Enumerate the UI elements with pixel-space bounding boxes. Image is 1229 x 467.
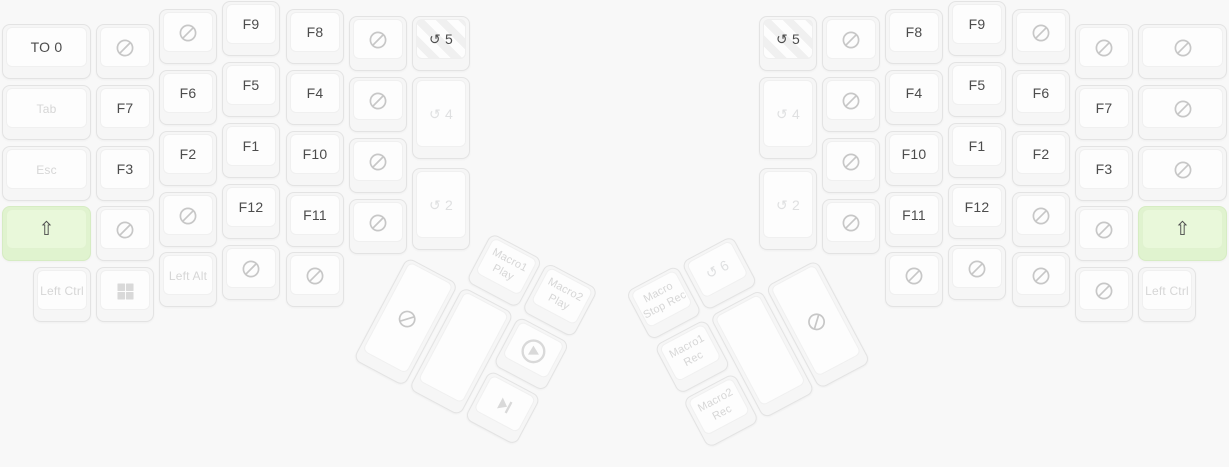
- key-f9[interactable]: F9: [948, 1, 1006, 56]
- key-label-line: F9: [243, 16, 260, 34]
- none-icon: [1076, 268, 1132, 314]
- key-label: F10: [287, 132, 343, 185]
- key-f10[interactable]: F10: [885, 131, 943, 186]
- key-label: ↺ 4: [413, 78, 469, 158]
- key-none[interactable]: [1138, 24, 1227, 79]
- none-icon: [823, 78, 879, 124]
- key-label: F9: [223, 2, 279, 55]
- key-label: F4: [886, 71, 942, 124]
- key-none[interactable]: [222, 245, 280, 300]
- key-f3[interactable]: F3: [1075, 146, 1133, 201]
- key-label-line: F12: [965, 199, 990, 217]
- key-f6[interactable]: F6: [1012, 70, 1070, 125]
- key-label-line: F1: [969, 138, 986, 156]
- none-icon: [823, 200, 879, 246]
- key-label-line: F1: [243, 138, 260, 156]
- key-label: ⇧: [3, 207, 90, 260]
- key-label-line: F4: [906, 85, 923, 103]
- key-none[interactable]: [1075, 267, 1133, 322]
- key-none[interactable]: [159, 192, 217, 247]
- none-icon: [350, 17, 406, 63]
- key-label-line: F8: [906, 24, 923, 42]
- key-label-line: F10: [902, 146, 927, 164]
- key-label: F2: [160, 132, 216, 185]
- key-f2[interactable]: F2: [159, 131, 217, 186]
- key-f3[interactable]: F3: [96, 146, 154, 201]
- key-f7[interactable]: F7: [96, 85, 154, 140]
- key-label-line: Left Ctrl: [40, 284, 84, 299]
- key-none[interactable]: [349, 77, 407, 132]
- key-none[interactable]: [885, 252, 943, 307]
- none-icon: [949, 246, 1005, 292]
- none-icon: [223, 246, 279, 292]
- key-f5[interactable]: F5: [948, 62, 1006, 117]
- none-icon: [823, 139, 879, 185]
- key-f9[interactable]: F9: [222, 1, 280, 56]
- key-label-line: F8: [307, 24, 324, 42]
- key-f2[interactable]: F2: [1012, 131, 1070, 186]
- none-icon: [823, 17, 879, 63]
- key-esc[interactable]: Esc: [2, 146, 91, 201]
- key-left-alt[interactable]: Left Alt: [159, 252, 217, 307]
- none-icon: [1076, 25, 1132, 71]
- key-f1[interactable]: F1: [222, 123, 280, 178]
- key-label: ↺ 4: [760, 78, 816, 158]
- key-label: F1: [223, 124, 279, 177]
- key-layer-4[interactable]: ↺ 4: [759, 77, 817, 159]
- none-icon: [287, 253, 343, 299]
- key-none[interactable]: [1012, 252, 1070, 307]
- key-label: F11: [886, 193, 942, 246]
- none-icon: [886, 253, 942, 299]
- key-none[interactable]: [1138, 85, 1227, 140]
- key-label-line: F10: [303, 146, 328, 164]
- key-f11[interactable]: F11: [885, 192, 943, 247]
- key-label: ⇧: [1139, 207, 1226, 260]
- key-tab[interactable]: Tab: [2, 85, 91, 140]
- key-label: Esc: [3, 147, 90, 200]
- key-f6[interactable]: F6: [159, 70, 217, 125]
- key-layer-2[interactable]: ↺ 2: [412, 168, 470, 250]
- key-f4[interactable]: F4: [286, 70, 344, 125]
- key-layer-5[interactable]: ↺ 5: [759, 16, 817, 71]
- key-label-line: ⇧: [1174, 218, 1190, 242]
- key-label-line: ⇧: [38, 218, 54, 242]
- key-label: ↺ 2: [760, 169, 816, 249]
- none-icon: [1076, 207, 1132, 253]
- key-layer-2[interactable]: ↺ 2: [759, 168, 817, 250]
- key-none[interactable]: [1138, 146, 1227, 201]
- key-label-line: F6: [180, 85, 197, 103]
- key-none[interactable]: [1012, 192, 1070, 247]
- none-icon: [160, 193, 216, 239]
- key-label-line: F11: [303, 207, 327, 225]
- key-f7[interactable]: F7: [1075, 85, 1133, 140]
- key-f10[interactable]: F10: [286, 131, 344, 186]
- key-label-line: F3: [117, 161, 134, 179]
- key-label-line: F7: [1096, 100, 1113, 118]
- key-label: F4: [287, 71, 343, 124]
- win-icon: [97, 268, 153, 314]
- key-label-line: F12: [239, 199, 264, 217]
- key-none[interactable]: [822, 199, 880, 254]
- key-label: F6: [1013, 71, 1069, 124]
- key-none[interactable]: [822, 77, 880, 132]
- key-label: F7: [1076, 86, 1132, 139]
- key-label: ↺ 5: [413, 17, 469, 70]
- key-f1[interactable]: F1: [948, 123, 1006, 178]
- key-label: F9: [949, 2, 1005, 55]
- none-icon: [1013, 10, 1069, 56]
- key-label-line: F4: [307, 85, 324, 103]
- key-label: ↺ 5: [760, 17, 816, 70]
- key-none[interactable]: [948, 245, 1006, 300]
- key-f8[interactable]: F8: [885, 9, 943, 64]
- key-label-line: F5: [969, 77, 986, 95]
- key-none[interactable]: [822, 138, 880, 193]
- key-none[interactable]: [286, 252, 344, 307]
- key-label-line: Left Ctrl: [1145, 284, 1189, 299]
- key-label: F12: [949, 185, 1005, 238]
- key-label-line: ↺ 5: [776, 31, 800, 49]
- none-icon: [1139, 25, 1226, 71]
- keyboard-layout: Macro1PlayMacro2Play MacroStop Rec↺ 6Mac…: [0, 0, 1229, 467]
- key-label: F1: [949, 124, 1005, 177]
- play-circle-icon: [505, 328, 561, 374]
- key-label: TO 0: [3, 25, 90, 78]
- key-label: F2: [1013, 132, 1069, 185]
- none-icon: [350, 200, 406, 246]
- none-icon: [97, 207, 153, 253]
- key-label: F6: [160, 71, 216, 124]
- none-icon: [1013, 253, 1069, 299]
- key-f4[interactable]: F4: [885, 70, 943, 125]
- key-label: F5: [949, 63, 1005, 116]
- key-label-line: ↺ 6: [703, 257, 732, 284]
- key-win[interactable]: [96, 267, 154, 322]
- key-label: Tab: [3, 86, 90, 139]
- key-label-line: Tab: [37, 102, 57, 117]
- key-label-line: ↺ 5: [429, 31, 453, 49]
- key-f12[interactable]: F12: [948, 184, 1006, 239]
- key-label-line: F7: [117, 100, 134, 118]
- key-none[interactable]: [349, 16, 407, 71]
- key-label: ↺ 2: [413, 169, 469, 249]
- key-f12[interactable]: F12: [222, 184, 280, 239]
- key-none[interactable]: [349, 138, 407, 193]
- key-label: Left Alt: [160, 253, 216, 306]
- key-label: F10: [886, 132, 942, 185]
- none-icon: [160, 10, 216, 56]
- key-label: F3: [1076, 147, 1132, 200]
- key-none[interactable]: [1075, 206, 1133, 261]
- key-label-line: F2: [180, 146, 197, 164]
- key-label-line: ↺ 4: [776, 106, 800, 124]
- key-left-ctrl[interactable]: Left Ctrl: [33, 267, 91, 322]
- key-none[interactable]: [96, 206, 154, 261]
- key-label-line: ↺ 2: [776, 197, 800, 215]
- key-f11[interactable]: F11: [286, 192, 344, 247]
- key-layer-4[interactable]: ↺ 4: [412, 77, 470, 159]
- key-label-line: Esc: [36, 163, 57, 178]
- none-icon: [1013, 193, 1069, 239]
- key-to-0[interactable]: TO 0: [2, 24, 91, 79]
- key-label: F5: [223, 63, 279, 116]
- none-icon: [1139, 86, 1226, 132]
- none-icon: [350, 139, 406, 185]
- key-left-ctrl[interactable]: Left Ctrl: [1138, 267, 1196, 322]
- key-label: Left Ctrl: [1139, 268, 1195, 321]
- key-none[interactable]: [822, 16, 880, 71]
- key-label-line: F9: [969, 16, 986, 34]
- key-label: F3: [97, 147, 153, 200]
- key-left-shift[interactable]: ⇧: [2, 206, 91, 261]
- key-label: F7: [97, 86, 153, 139]
- key-label-line: Left Alt: [169, 269, 207, 284]
- key-label: F8: [287, 10, 343, 63]
- key-none[interactable]: [159, 9, 217, 64]
- key-label-line: F11: [902, 207, 926, 225]
- key-none[interactable]: [96, 24, 154, 79]
- key-label-line: TO 0: [31, 39, 63, 57]
- key-label: F12: [223, 185, 279, 238]
- key-label-line: F3: [1096, 161, 1113, 179]
- key-right-shift[interactable]: ⇧: [1138, 206, 1227, 261]
- key-label-line: F6: [1033, 85, 1050, 103]
- none-icon: [350, 78, 406, 124]
- key-none[interactable]: [349, 199, 407, 254]
- key-label-line: ↺ 4: [429, 106, 453, 124]
- none-icon: [1139, 147, 1226, 193]
- key-label-line: F5: [243, 77, 260, 95]
- key-layer-5[interactable]: ↺ 5: [412, 16, 470, 71]
- key-none[interactable]: [1075, 24, 1133, 79]
- none-icon: [97, 25, 153, 71]
- key-none[interactable]: [1012, 9, 1070, 64]
- key-f5[interactable]: F5: [222, 62, 280, 117]
- key-label: F11: [287, 193, 343, 246]
- key-label-line: F2: [1033, 146, 1050, 164]
- key-label: Left Ctrl: [34, 268, 90, 321]
- key-f8[interactable]: F8: [286, 9, 344, 64]
- key-label: F8: [886, 10, 942, 63]
- key-label-line: ↺ 2: [429, 197, 453, 215]
